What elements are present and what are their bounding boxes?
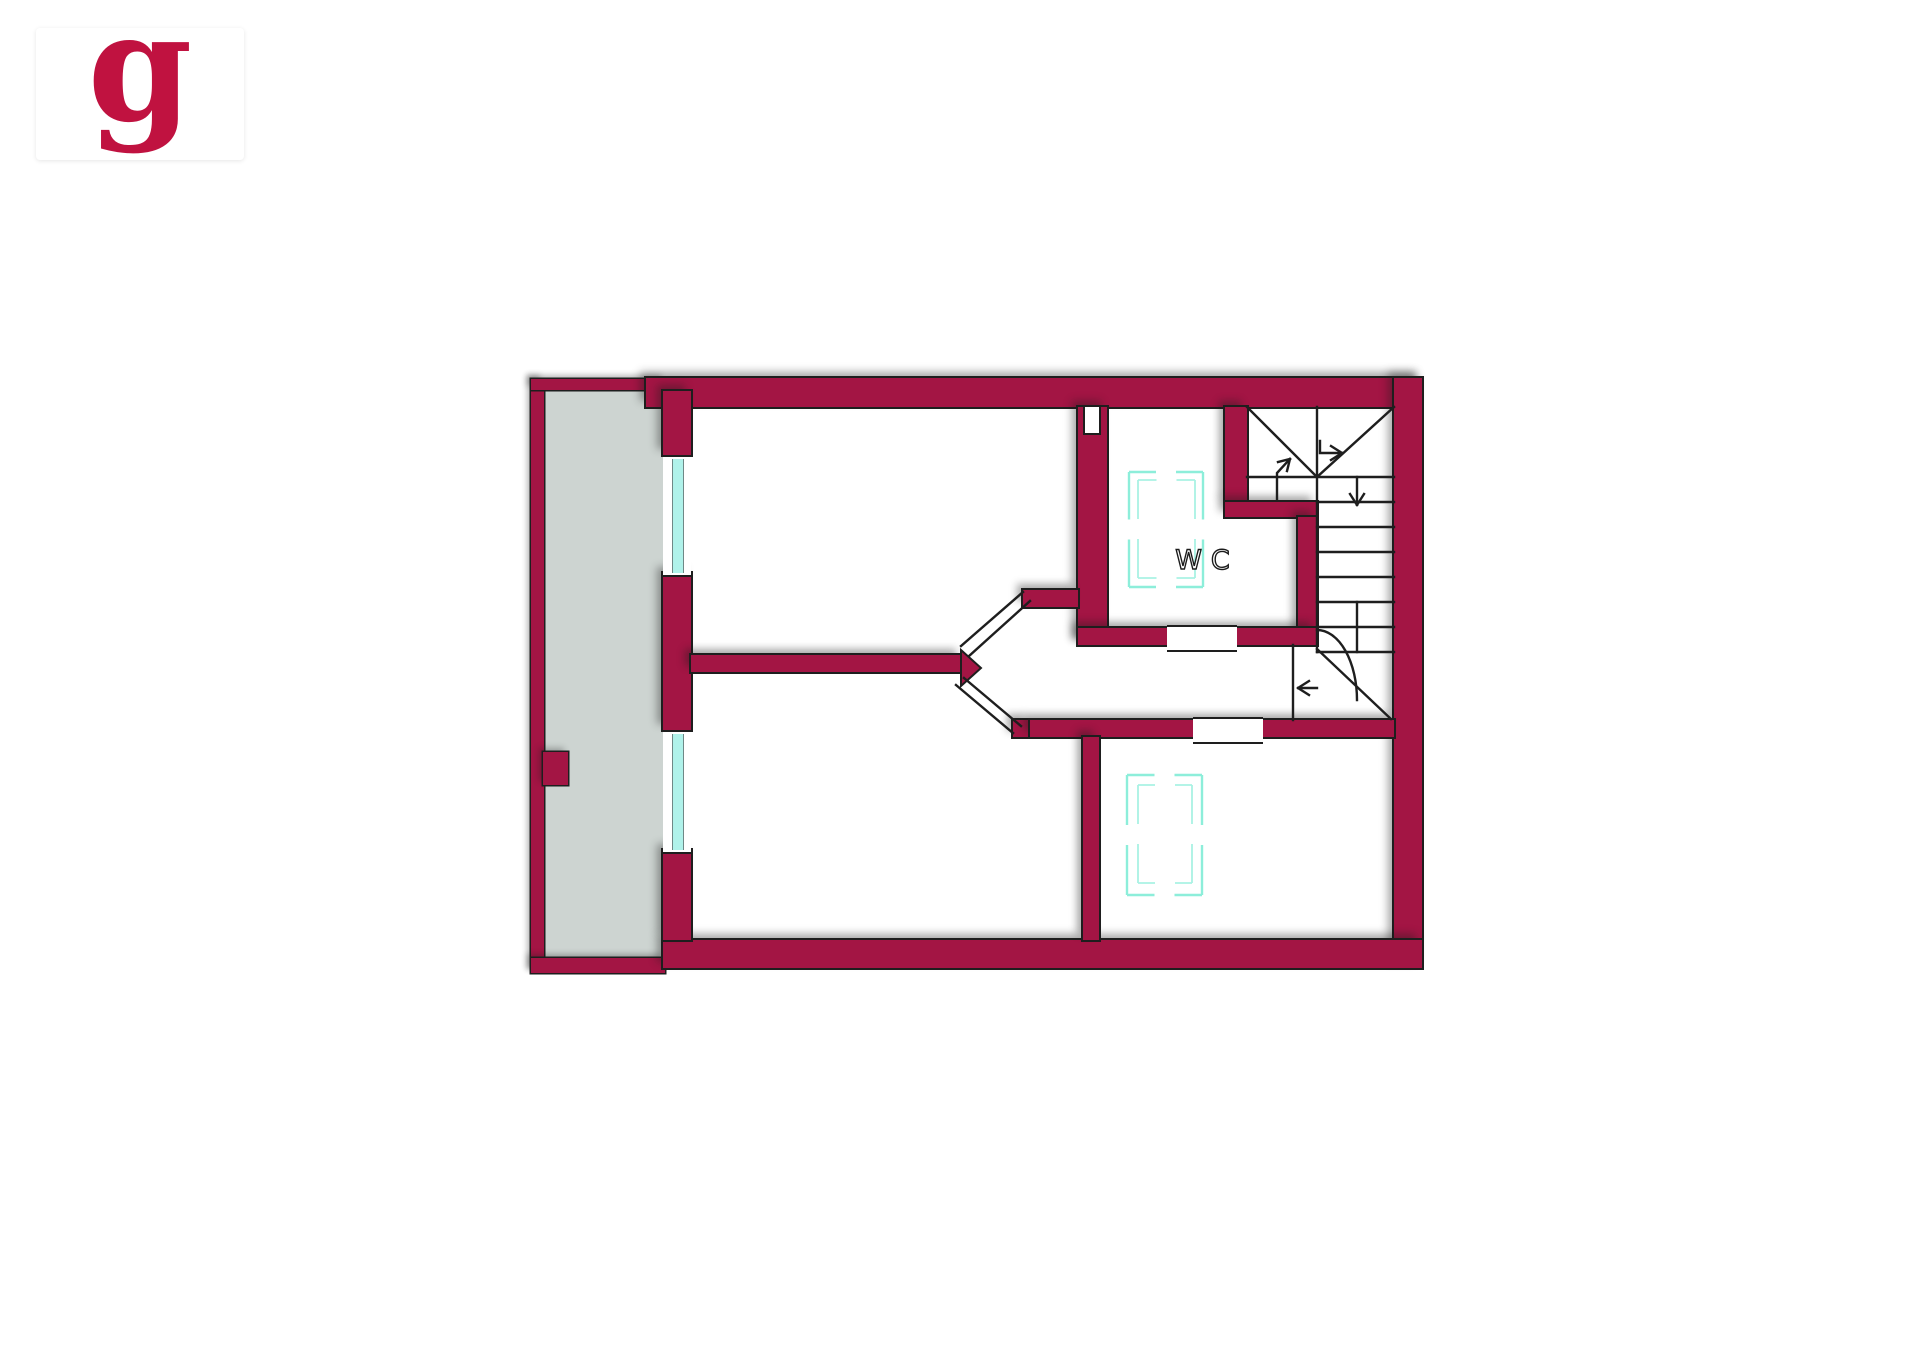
staircase bbox=[1247, 407, 1394, 720]
floor-plan: WC bbox=[0, 0, 1920, 1358]
room-label-wc: WC bbox=[1168, 546, 1246, 576]
stair-bottom-winder bbox=[1293, 630, 1391, 720]
hall-double-door bbox=[956, 592, 1030, 733]
skylight-icon bbox=[1127, 775, 1202, 895]
plan-linework bbox=[0, 0, 1920, 1358]
stair-up-arrow bbox=[1277, 459, 1290, 499]
